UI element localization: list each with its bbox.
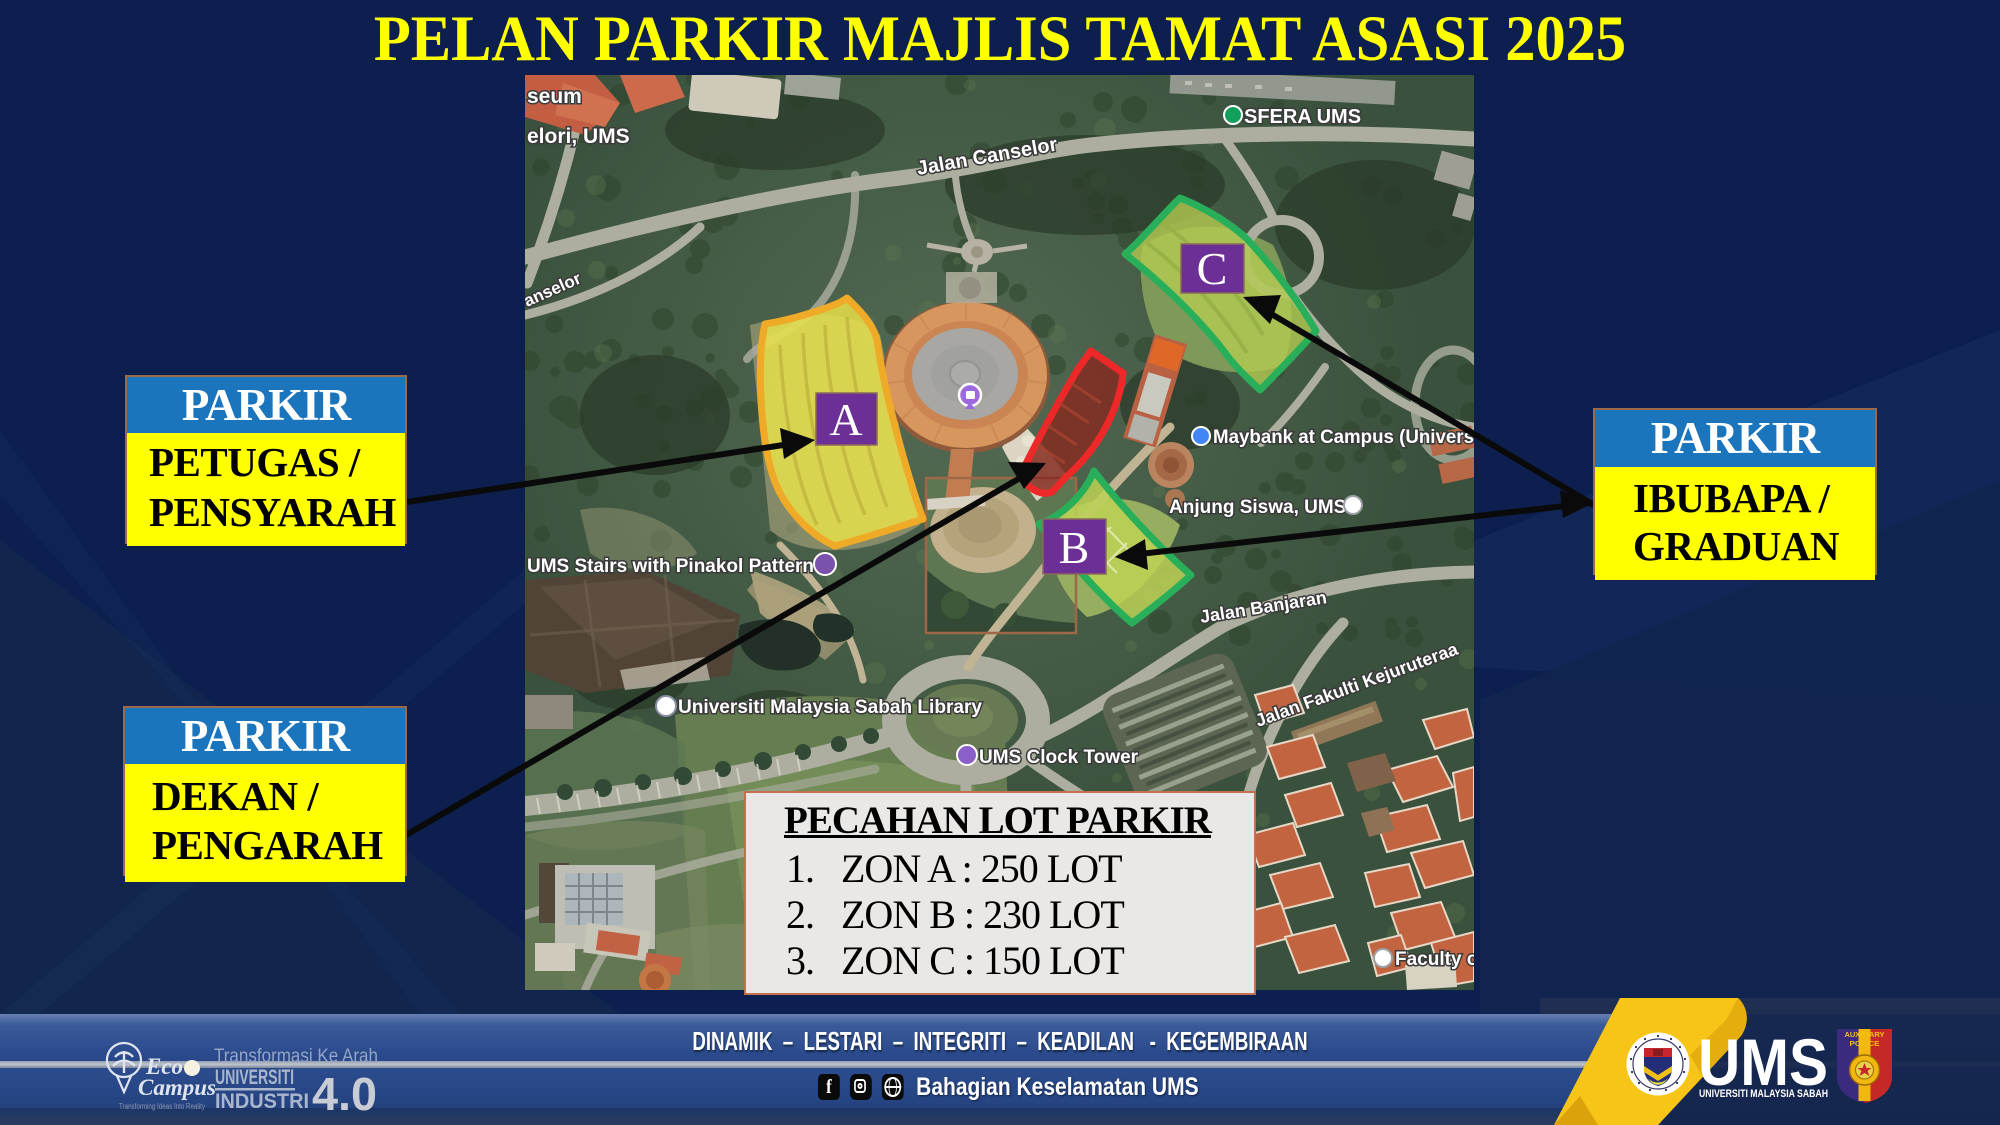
svg-text:UNIVERSITI: UNIVERSITI bbox=[215, 1066, 294, 1089]
svg-text:UNIVERSITI MALAYSIA SABAH: UNIVERSITI MALAYSIA SABAH bbox=[1699, 1088, 1828, 1100]
svg-text:AUXILIARY: AUXILIARY bbox=[1845, 1030, 1885, 1039]
svg-text:POLICE: POLICE bbox=[1850, 1039, 1880, 1048]
svg-text:4.0: 4.0 bbox=[312, 1068, 377, 1115]
svg-text:Transformasi Ke Arah: Transformasi Ke Arah bbox=[214, 1046, 378, 1067]
svg-text:Transforming Ideas Into Realit: Transforming Ideas Into Reality bbox=[119, 1102, 205, 1111]
svg-text:INDUSTRI: INDUSTRI bbox=[215, 1090, 309, 1113]
svg-text:Campus: Campus bbox=[138, 1075, 216, 1100]
